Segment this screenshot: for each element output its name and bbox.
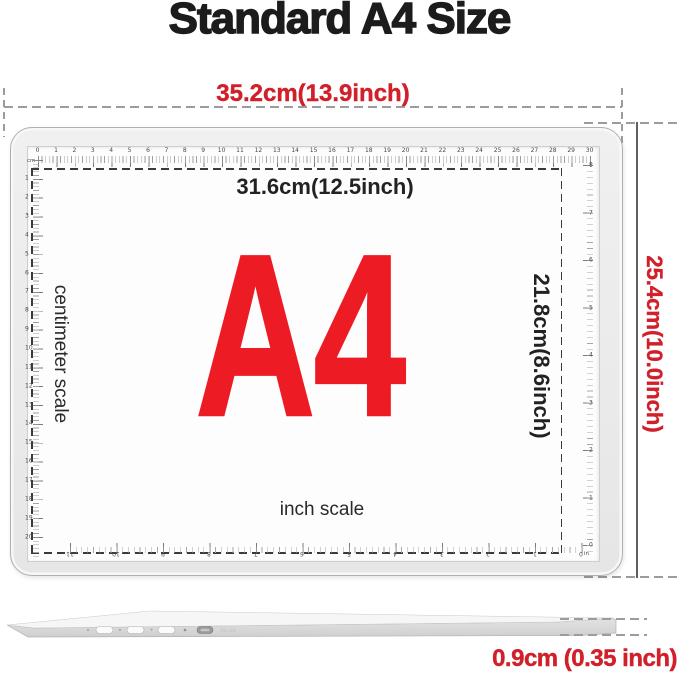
inner-height-dimension-label: 21.8cm(8.6inch)	[528, 273, 554, 438]
port-spec-label: 5V=2A	[220, 628, 237, 634]
side-button-1	[96, 627, 113, 634]
left-cm-ruler-minor-ticks	[33, 160, 39, 558]
a4-light-pad-infographic: Standard A4 Size 35.2cm(13.9inch) 25.4cm…	[0, 0, 679, 676]
top-cm-ruler-minor-ticks	[38, 156, 591, 163]
a4-size-label: A4	[196, 221, 405, 451]
drawing-area-outline-top	[31, 168, 562, 170]
side-button-3	[158, 627, 175, 634]
right-inch-ruler-minor-ticks	[587, 165, 593, 553]
width-extension-line-left	[3, 88, 5, 137]
inner-width-dimension-label: 31.6cm(12.5inch)	[236, 174, 413, 200]
centimeter-scale-caption: centimeter scale	[49, 285, 71, 423]
outer-height-dimension-label: 25.4cm(10.0inch)	[641, 255, 667, 432]
power-icon	[87, 629, 89, 631]
page-title: Standard A4 Size	[0, 0, 679, 44]
outer-width-dimension-label: 35.2cm(13.9inch)	[4, 80, 622, 108]
height-dimension-line	[636, 122, 638, 578]
height-extension-line-bottom	[584, 576, 679, 578]
brightness-icon	[119, 629, 121, 631]
indicator-led	[184, 629, 187, 632]
width-dimension-line	[4, 106, 622, 108]
thickness-extension-line-bottom	[560, 634, 647, 636]
inch-unit-label: in	[584, 551, 589, 557]
height-extension-line-top	[584, 122, 679, 124]
thickness-dimension-label: 0.9cm (0.35 inch)	[492, 645, 677, 673]
usb-c-port-slot	[201, 629, 210, 632]
bottom-inch-ruler-minor-ticks	[70, 547, 583, 553]
inch-scale-caption: inch scale	[280, 499, 365, 521]
thickness-extension-line-top	[560, 618, 647, 620]
side-button-2	[127, 627, 144, 634]
drawing-area-outline-right	[561, 168, 563, 554]
